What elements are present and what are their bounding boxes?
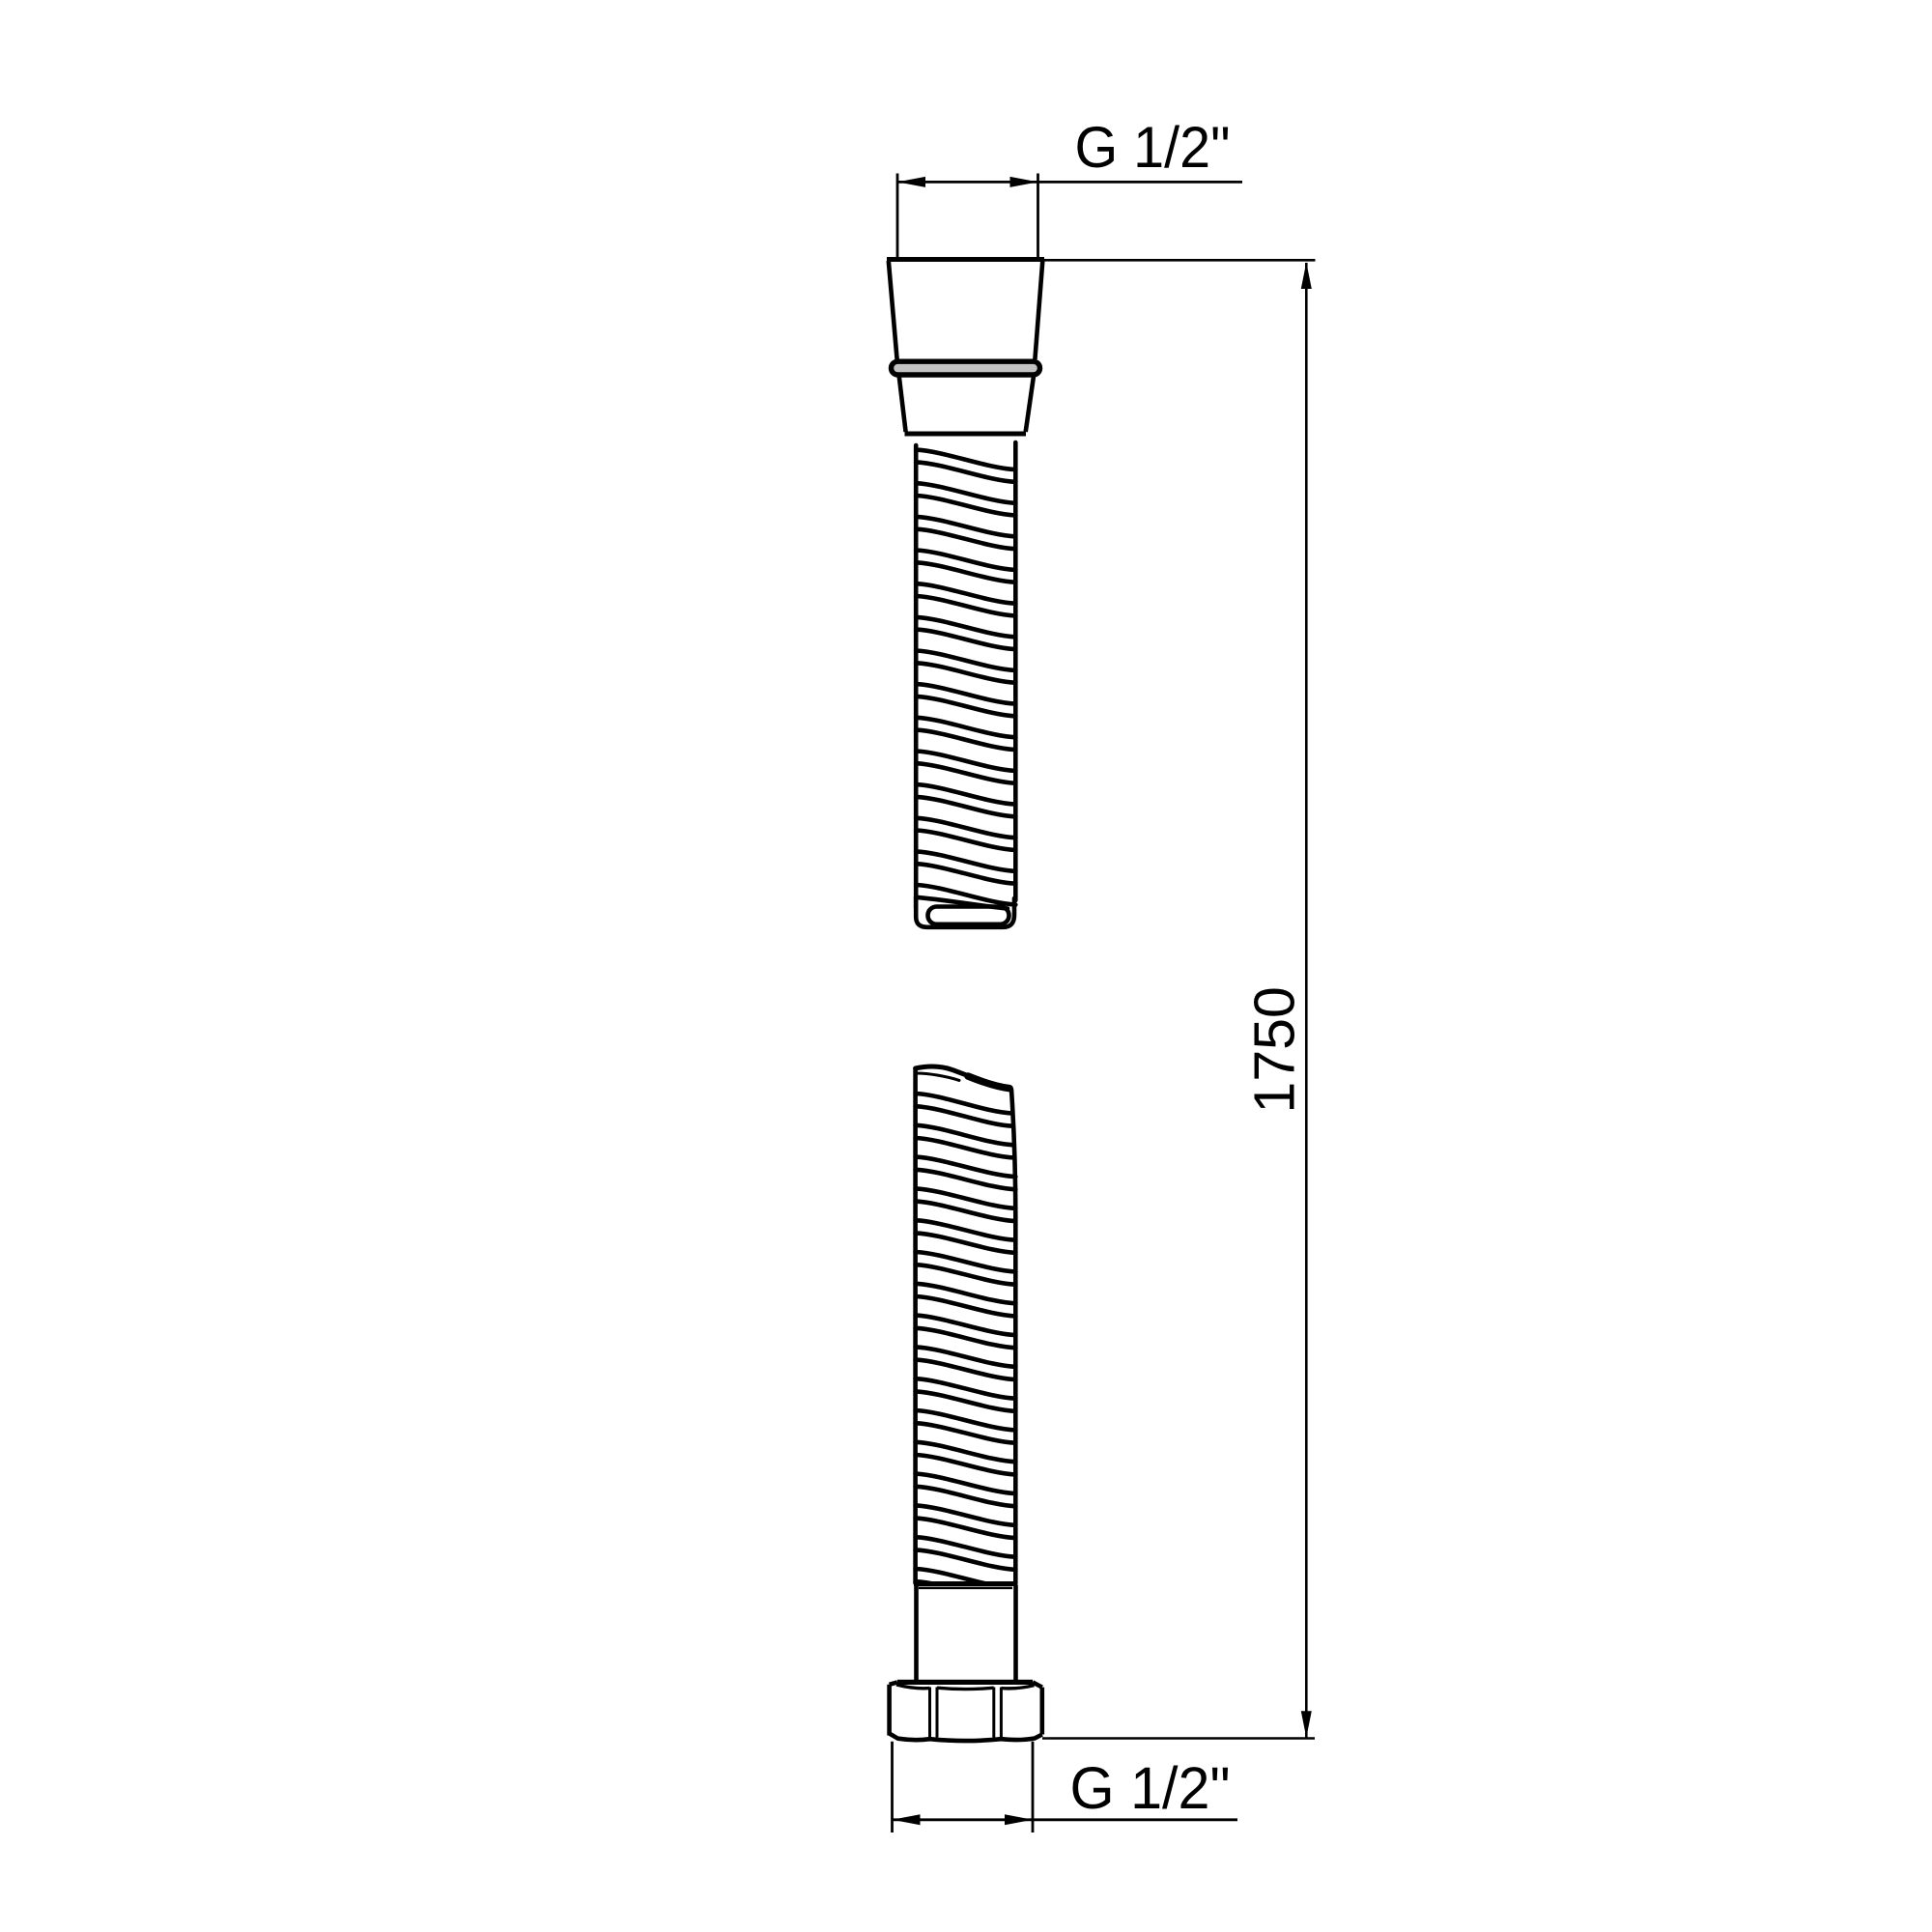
svg-text:G 1/2": G 1/2" xyxy=(1070,1755,1231,1821)
svg-text:G 1/2": G 1/2" xyxy=(1075,115,1231,180)
svg-text:1750: 1750 xyxy=(1243,986,1307,1113)
